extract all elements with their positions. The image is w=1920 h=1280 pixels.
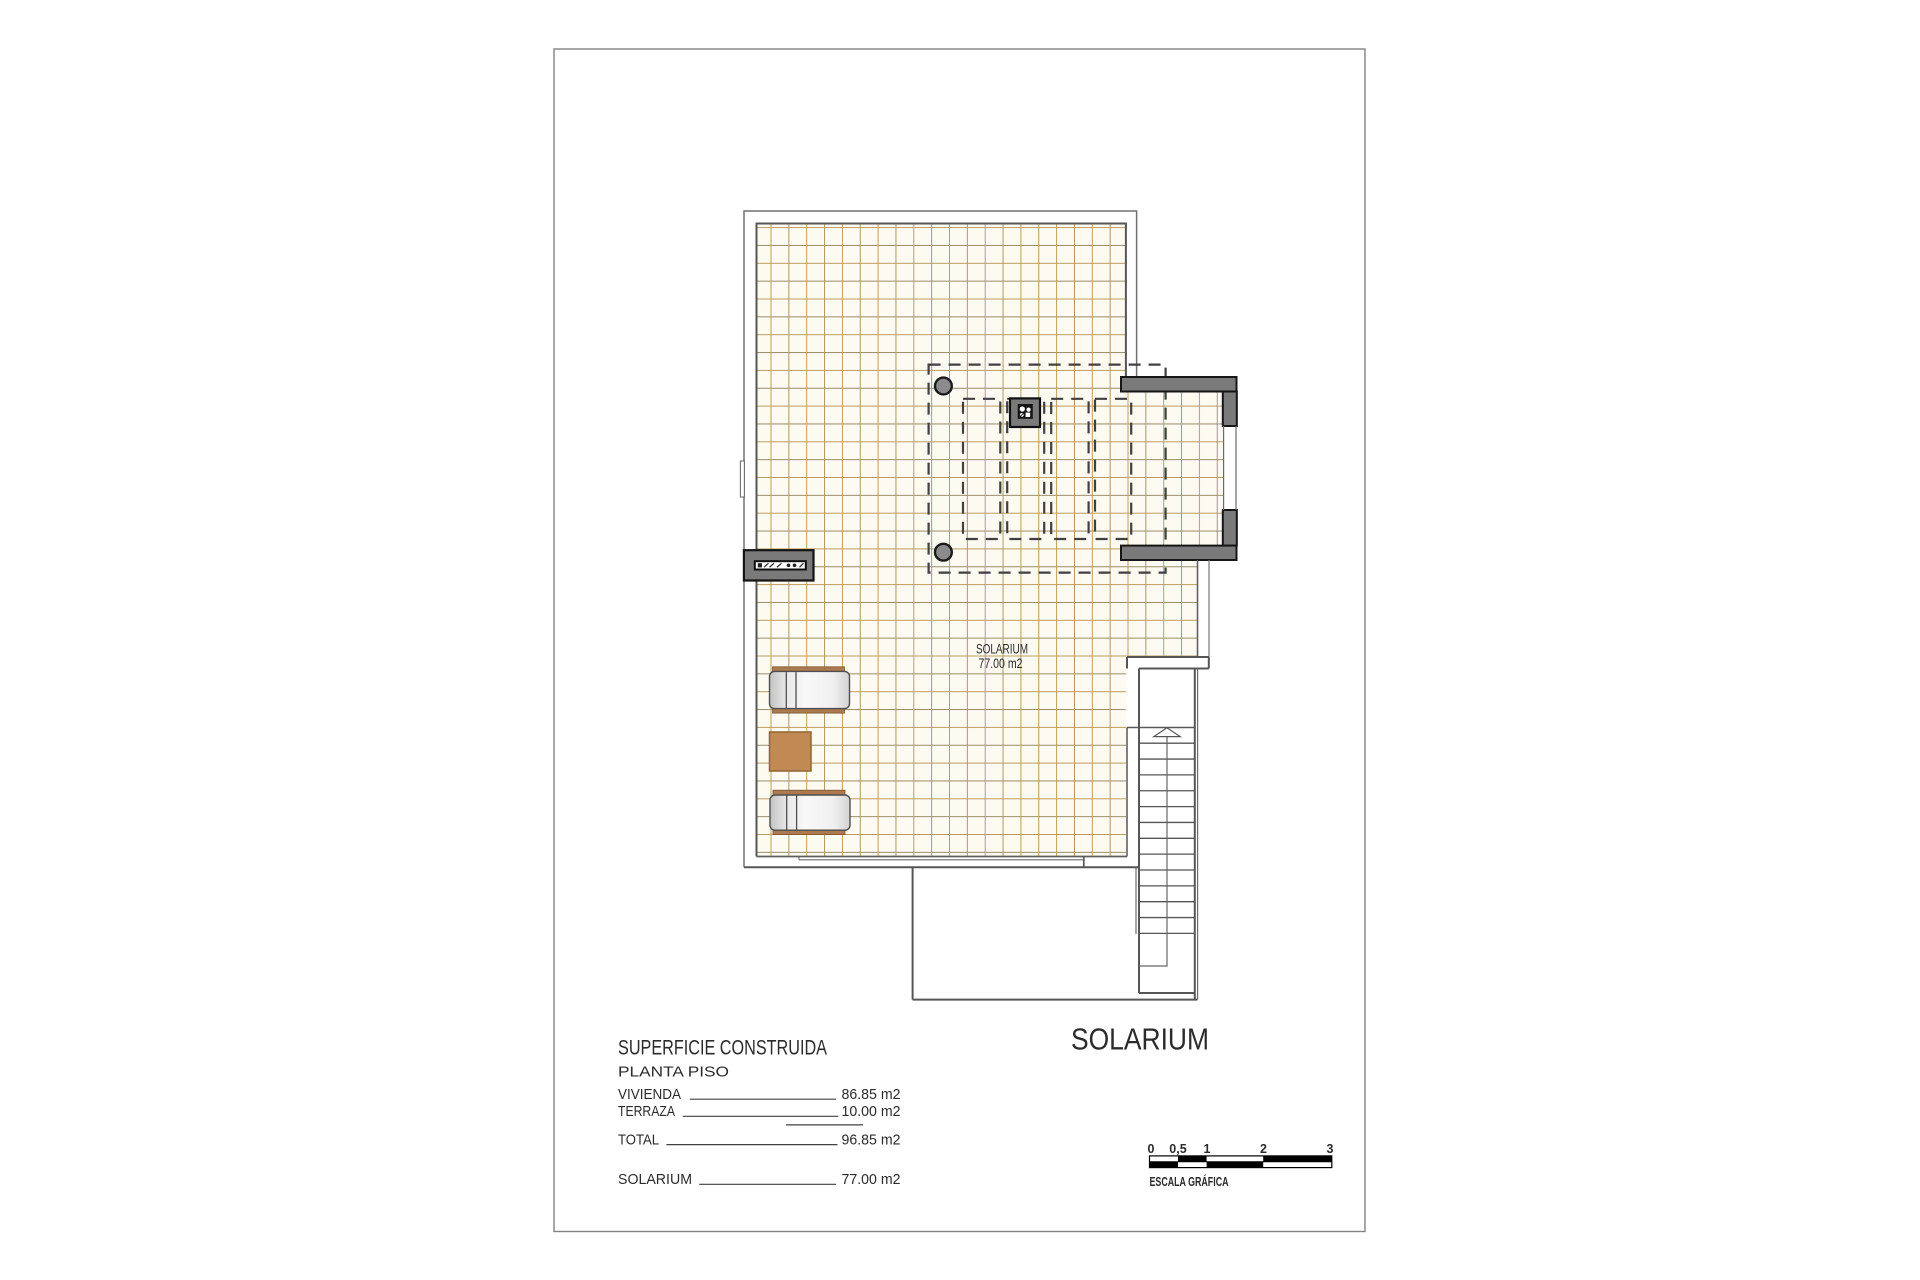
svg-text:0,5: 0,5	[1169, 1142, 1186, 1156]
svg-text:TERRAZA: TERRAZA	[618, 1103, 675, 1120]
svg-text:VIVIENDA: VIVIENDA	[618, 1086, 681, 1103]
svg-text:2: 2	[1260, 1142, 1267, 1156]
svg-text:SUPERFICIE CONSTRUIDA: SUPERFICIE CONSTRUIDA	[618, 1037, 827, 1060]
svg-text:SOLARIUM: SOLARIUM	[1071, 1021, 1209, 1056]
svg-text:77.00 m2: 77.00 m2	[842, 1171, 901, 1188]
svg-text:86.85 m2: 86.85 m2	[842, 1086, 901, 1103]
svg-text:0: 0	[1148, 1142, 1155, 1156]
svg-text:96.85 m2: 96.85 m2	[842, 1131, 901, 1148]
svg-text:3: 3	[1327, 1142, 1334, 1156]
svg-text:PLANTA PISO: PLANTA PISO	[618, 1064, 729, 1081]
svg-text:77.00 m2: 77.00 m2	[979, 655, 1023, 671]
svg-text:ESCALA GRÁFICA: ESCALA GRÁFICA	[1150, 1174, 1229, 1189]
svg-text:1: 1	[1204, 1142, 1211, 1156]
svg-text:SOLARIUM: SOLARIUM	[618, 1171, 692, 1188]
svg-text:10.00 m2: 10.00 m2	[842, 1103, 901, 1120]
svg-text:TOTAL: TOTAL	[618, 1131, 659, 1148]
